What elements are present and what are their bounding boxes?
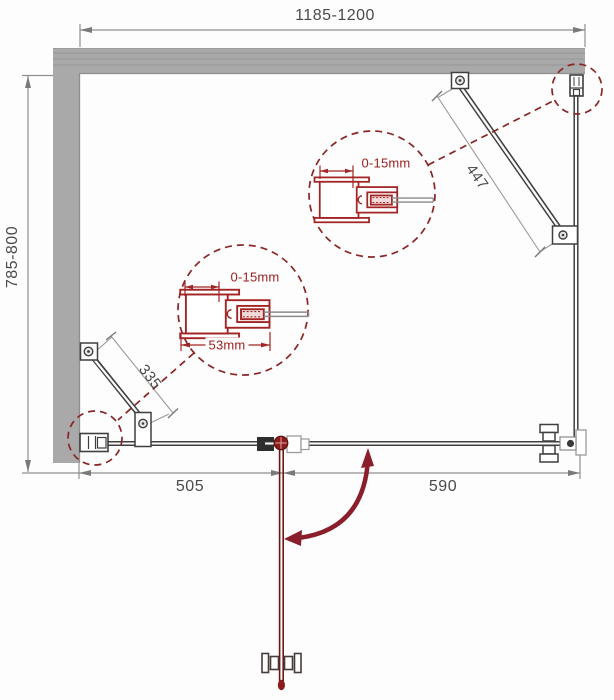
support-bar-upper (432, 73, 578, 258)
detail-label-gap-upper: 0-15mm (362, 156, 411, 171)
fixed-glass-panel-bottom (108, 442, 578, 446)
dimension-bottom-segments (79, 450, 580, 479)
detail-label-profile-width: 53mm (206, 338, 249, 353)
fixed-glass-panel-right (574, 96, 578, 445)
profile-cross-section-upper (314, 166, 433, 223)
fixed-panel-knob (540, 425, 558, 463)
dim-label-left-height: 785-800 (4, 226, 22, 288)
wall (53, 48, 585, 463)
pivot-hinge (274, 436, 288, 450)
detail-label-gap-lower: 0-15mm (231, 270, 280, 285)
dimension-top-width (80, 24, 585, 47)
wall-profile-bracket-top-right (570, 75, 583, 96)
corner-hardware-bottom-right (560, 430, 586, 455)
dim-label-bottom-590: 590 (429, 478, 457, 496)
dim-label-bottom-505: 505 (176, 478, 204, 496)
door-swing-arrow (284, 448, 374, 546)
support-bar-lower (81, 332, 179, 447)
pivot-door-open (262, 450, 301, 690)
wall-profile-bracket-bottom-left (80, 434, 108, 452)
diagram-canvas (0, 0, 614, 700)
detail-callout-circles (68, 64, 602, 465)
door-handle-knob (262, 654, 301, 673)
dim-label-top-width: 1185-1200 (295, 7, 375, 25)
shower-enclosure-plan-diagram: 1185-1200 785-800 447 335 505 590 0-15mm… (0, 0, 614, 700)
